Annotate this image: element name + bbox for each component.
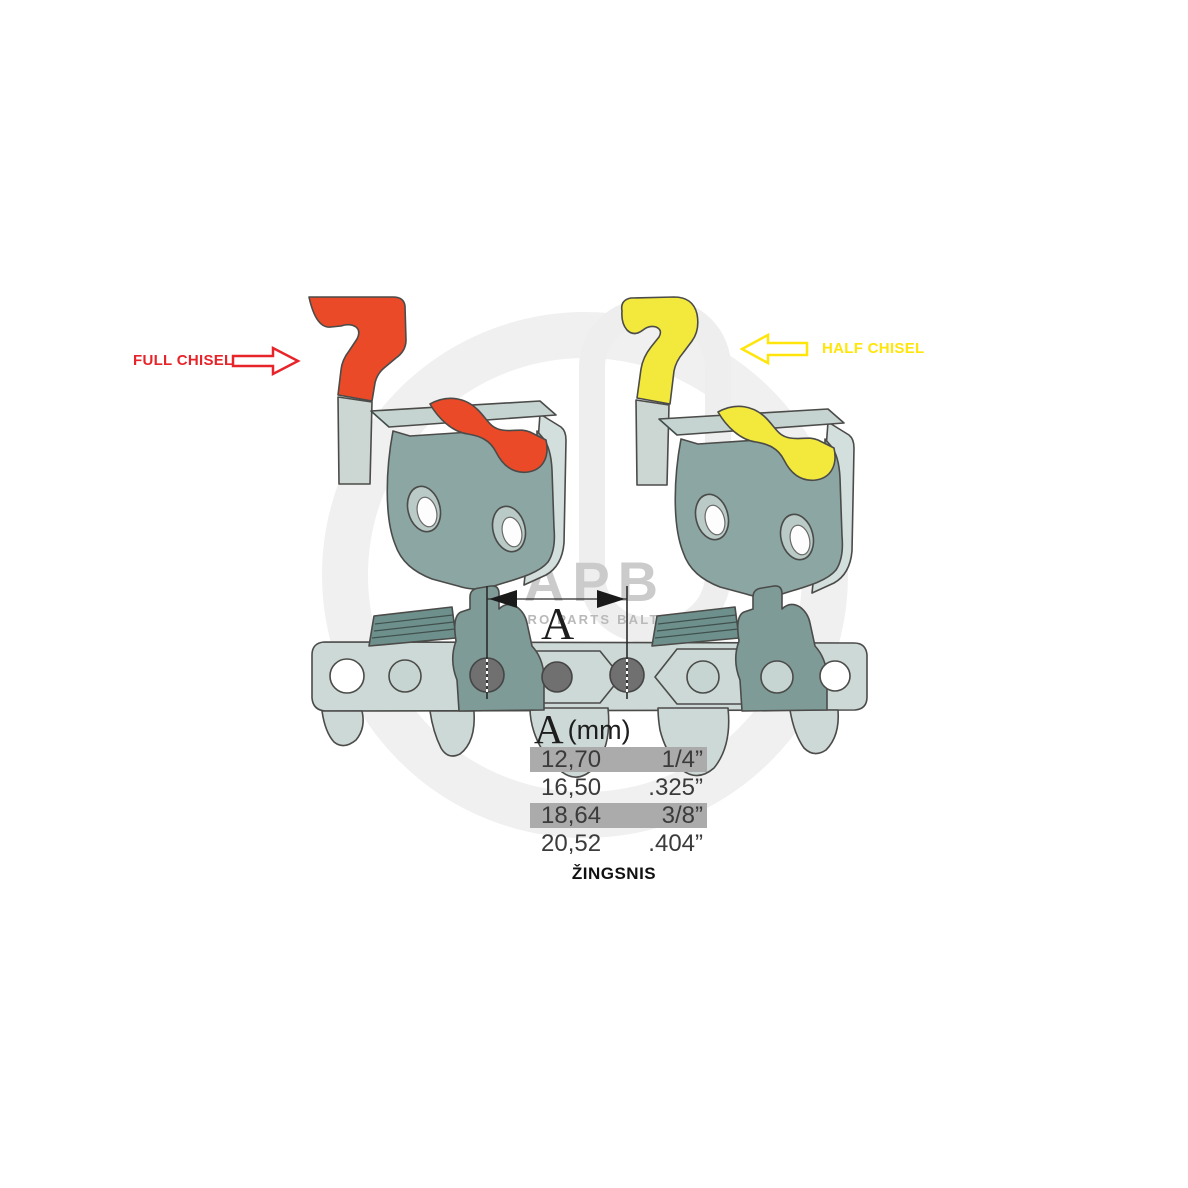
drive-link-tooth	[790, 710, 838, 754]
pitch-table-row: 18,64 3/8”	[530, 803, 707, 828]
drive-link-tooth	[322, 711, 363, 746]
half-chisel-cutter-link	[659, 406, 854, 597]
pitch-caption: ŽINGSNIS	[538, 864, 690, 884]
chain-rivet-dark	[542, 662, 572, 692]
half-chisel-label: HALF CHISEL	[822, 340, 924, 357]
full-chisel-label: FULL CHISEL	[133, 352, 234, 369]
chain-end-hole	[330, 659, 364, 693]
half-chisel-arrow-icon	[742, 335, 807, 363]
chain-rivet-light	[389, 660, 421, 692]
pitch-mm-value: 18,64	[541, 802, 601, 830]
pitch-inch-value: 1/4”	[662, 746, 703, 774]
chain-rivet-light	[687, 661, 719, 693]
half-chisel-profile-shank	[636, 400, 669, 485]
pitch-mm-value: 12,70	[541, 746, 601, 774]
chain-rivet-light	[761, 661, 793, 693]
full-chisel-profile-shank	[338, 397, 372, 484]
full-chisel-profile-shape	[309, 297, 406, 401]
pitch-mm-value: 16,50	[541, 774, 601, 802]
pitch-table-row: 20,52 .404”	[530, 831, 707, 856]
chain-end-hole	[820, 661, 850, 691]
pitch-inch-value: .404”	[648, 830, 703, 858]
pitch-table-header-unit: (mm)	[568, 715, 631, 745]
pitch-table-row: 12,70 1/4”	[530, 747, 707, 772]
pitch-inch-value: 3/8”	[662, 802, 703, 830]
chainsaw-chain-diagram: APB AGRO PARTS BALTIJA	[0, 0, 1188, 1188]
pitch-dimension-letter: A	[541, 597, 574, 650]
full-chisel-cutter-link	[371, 398, 566, 589]
pitch-table-row: 16,50 .325”	[530, 775, 707, 800]
pitch-mm-value: 20,52	[541, 830, 601, 858]
diagram-art: APB AGRO PARTS BALTIJA	[0, 0, 1188, 1188]
full-chisel-arrow-icon	[233, 348, 298, 374]
pitch-inch-value: .325”	[648, 774, 703, 802]
